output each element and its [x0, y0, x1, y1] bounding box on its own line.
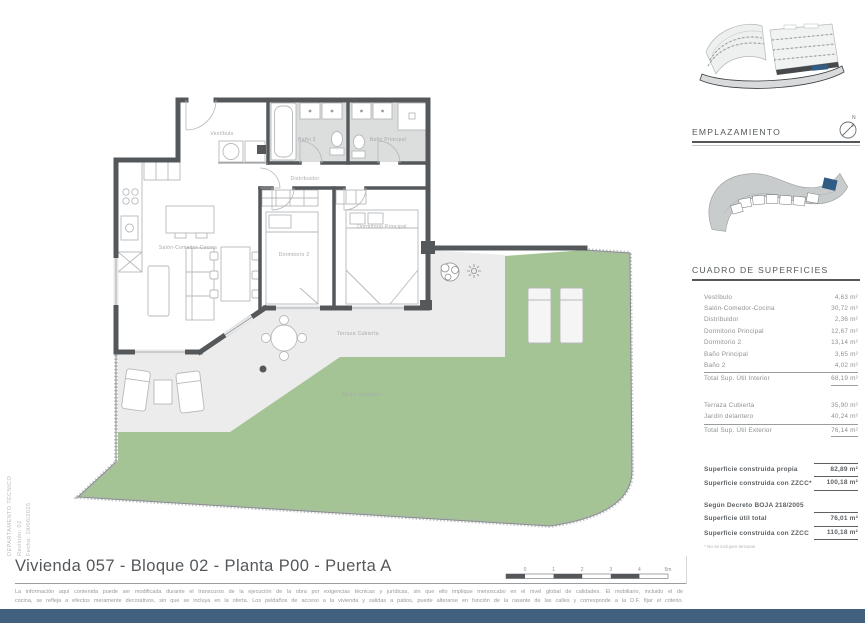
plan-sheet: DEPARTAMENTO TÉCNICO Revisión: 02 Fecha:…: [0, 0, 865, 623]
row-label: Salón-Comedor-Cocina: [704, 303, 775, 314]
table-row: Baño 24,02 m²: [704, 360, 858, 371]
label-dormitorio2: Dormitorio 2: [279, 252, 310, 258]
row-value: 3,65 m²: [835, 349, 858, 360]
row-label: Total Sup. Útil Exterior: [704, 425, 772, 437]
row-label: Terraza Cubierta: [704, 400, 754, 411]
row-label: Total Sup. Útil Interior: [704, 373, 770, 385]
exterior-total-row: Total Sup. Útil Exterior76,14 m²: [704, 424, 858, 437]
title-divider: [686, 556, 687, 584]
table-row: Distribuidor2,36 m²: [704, 314, 858, 325]
disclaimer-line-2: cocina, se refleja a efectos meramente d…: [15, 597, 683, 606]
legal-disclaimer: La información aquí contenida puede ser …: [15, 588, 683, 606]
terrace-column: [260, 366, 267, 373]
row-value: 76,01 m²: [814, 512, 858, 526]
table-row: Jardín delantero40,24 m²: [704, 411, 858, 422]
label-dormitorio-principal: Dormitorio Principal: [357, 224, 407, 230]
floor-plan: Vestíbulo Baño 2 Baño Principal Distribu…: [0, 0, 690, 600]
right-column: EMPLAZAMIENTO N: [692, 8, 860, 549]
section-rule: [692, 141, 860, 143]
row-label: Baño Principal: [704, 349, 748, 360]
section-rule: [692, 279, 860, 281]
row-value: 13,14 m²: [831, 337, 858, 348]
row-label: Superficie construida con ZZCC: [704, 528, 809, 541]
row-label: Baño 2: [704, 360, 725, 371]
label-jardin: Jardín delantero: [342, 392, 383, 398]
footer-bar: [0, 609, 865, 623]
table-row: Dormitorio 213,14 m²: [704, 337, 858, 348]
row-value: 2,36 m²: [835, 314, 858, 325]
decree-row: Superficie útil total76,01 m²: [704, 512, 858, 526]
site-highlighted-unit: [823, 177, 837, 189]
column-block: [421, 241, 435, 254]
disclaimer-line-1: La información aquí contenida puede ser …: [15, 588, 683, 597]
column-block: [420, 300, 432, 310]
row-label: Dormitorio Principal: [704, 326, 764, 337]
scale-tick: 2: [581, 567, 584, 573]
scale-bar: 0 1 2 3 4 5m: [506, 567, 671, 579]
label-terraza: Terraza Cubierta: [337, 331, 379, 337]
scale-tick: 0: [524, 567, 527, 573]
built-area-row: Superficie construida con ZZCC*100,18 m²: [704, 476, 858, 491]
label-distribuidor: Distribuidor: [291, 176, 320, 182]
decree-row: Superficie construida con ZZCC110,18 m²: [704, 526, 858, 541]
row-label: Dormitorio 2: [704, 337, 741, 348]
label-vestibulo: Vestíbulo: [210, 131, 233, 137]
column-block: [257, 145, 266, 154]
scale-tick: 3: [609, 567, 612, 573]
row-value: 4,63 m²: [835, 292, 858, 303]
row-value: 35,90 m²: [831, 400, 858, 411]
scale-tick: 1: [552, 567, 555, 573]
surfaces-heading: CUADRO DE SUPERFICIES: [692, 265, 860, 279]
row-value: 82,89 m²: [814, 463, 858, 477]
section-rule-thin: [692, 145, 860, 146]
table-footnote: * No se incluyen terrazas: [704, 544, 858, 549]
interior-total-row: Total Sup. Útil Interior68,19 m²: [704, 372, 858, 385]
decree-heading: Según Decreto BOJA 218/2005: [704, 500, 858, 513]
row-value: 76,14 m²: [831, 425, 858, 437]
row-value: 40,24 m²: [831, 411, 858, 422]
row-value: 12,67 m²: [831, 326, 858, 337]
row-label: Distribuidor: [704, 314, 739, 325]
row-label: Superficie útil total: [704, 513, 767, 526]
plant-icon: [441, 263, 459, 281]
scale-tick: 4: [638, 567, 641, 573]
page-title: Vivienda 057 - Bloque 02 - Planta P00 - …: [15, 557, 392, 576]
surfaces-table: Vestíbulo4,63 m² Salón-Comedor-Cocina30,…: [692, 292, 860, 550]
row-value: 30,72 m²: [831, 303, 858, 314]
built-area-row: Superficie construida propia82,89 m²: [704, 463, 858, 477]
table-row: Salón-Comedor-Cocina30,72 m²: [704, 303, 858, 314]
building-render: [692, 8, 860, 108]
label-bano-principal: Baño Principal: [370, 137, 406, 143]
surfaces-section: CUADRO DE SUPERFICIES Vestíbulo4,63 m² S…: [692, 265, 860, 550]
site-plan: [692, 154, 860, 246]
title-rule: [15, 583, 686, 584]
north-compass-icon: N: [838, 113, 860, 141]
table-row: Vestíbulo4,63 m²: [704, 292, 858, 303]
label-salon: Salón-Comedor-Cocina: [159, 245, 217, 251]
row-label: Superficie construida propia: [704, 464, 798, 477]
row-label: Jardín delantero: [704, 411, 753, 422]
table-row: Terraza Cubierta35,90 m²: [704, 400, 858, 411]
emplazamiento-section: EMPLAZAMIENTO N: [692, 127, 860, 251]
row-value: 4,02 m²: [835, 360, 858, 371]
table-row: Dormitorio Principal12,67 m²: [704, 326, 858, 337]
table-row: Baño Principal3,65 m²: [704, 349, 858, 360]
scale-tick: 5m: [665, 567, 672, 573]
compass-north-letter: N: [852, 115, 856, 121]
label-bano2: Baño 2: [298, 137, 316, 143]
row-value: 110,18 m²: [814, 526, 858, 541]
emplazamiento-heading: EMPLAZAMIENTO: [692, 127, 860, 141]
row-value: 68,19 m²: [831, 373, 858, 385]
row-label: Vestíbulo: [704, 292, 732, 303]
row-value: 100,18 m²: [814, 476, 858, 491]
row-label: Superficie construida con ZZCC*: [704, 478, 812, 491]
